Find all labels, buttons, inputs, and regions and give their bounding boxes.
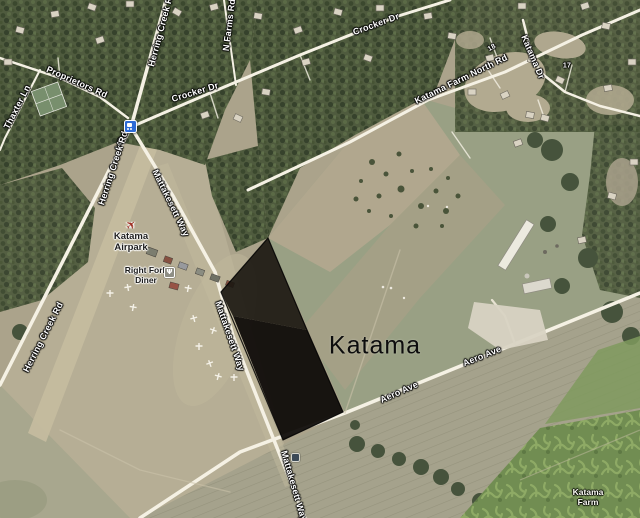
poi-label-right-fork-diner: Right Fork Diner [125, 265, 168, 285]
bus-stop-icon[interactable] [124, 120, 137, 133]
bus-stop-icon-south[interactable] [291, 453, 300, 462]
locality-label-katama: Katama [329, 332, 421, 361]
satellite-map[interactable]: Herring Creek Rd Thaxter Ln Proprietors … [0, 0, 640, 518]
restaurant-icon[interactable]: Ψ [164, 267, 175, 278]
poi-label-katama-airpark: Katama Airpark [114, 231, 148, 253]
poi-label-katama-farm: Katama Farm [573, 487, 604, 507]
house-number-17: 17 [563, 63, 571, 70]
